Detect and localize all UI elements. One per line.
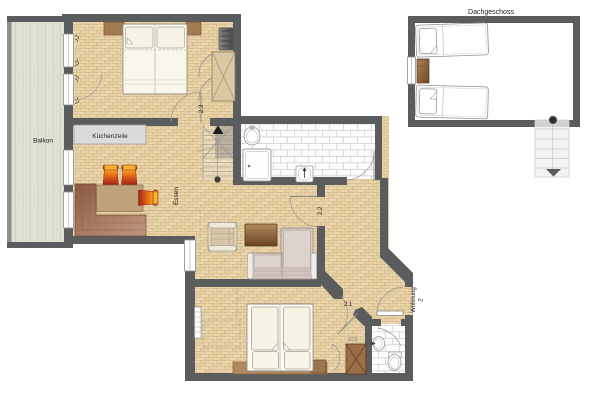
- svg-text:Dachgeschoss: Dachgeschoss: [468, 9, 514, 16]
- svg-text:Essen: Essen: [173, 187, 180, 205]
- svg-text:2.2: 2.2: [318, 206, 324, 215]
- svg-text:Wohnung: Wohnung: [411, 287, 417, 313]
- svg-text:Küchenzeile: Küchenzeile: [92, 133, 128, 140]
- svg-text:2.1: 2.1: [344, 302, 353, 308]
- svg-text:2.3: 2.3: [199, 104, 205, 113]
- svg-text:Balkon: Balkon: [33, 138, 53, 145]
